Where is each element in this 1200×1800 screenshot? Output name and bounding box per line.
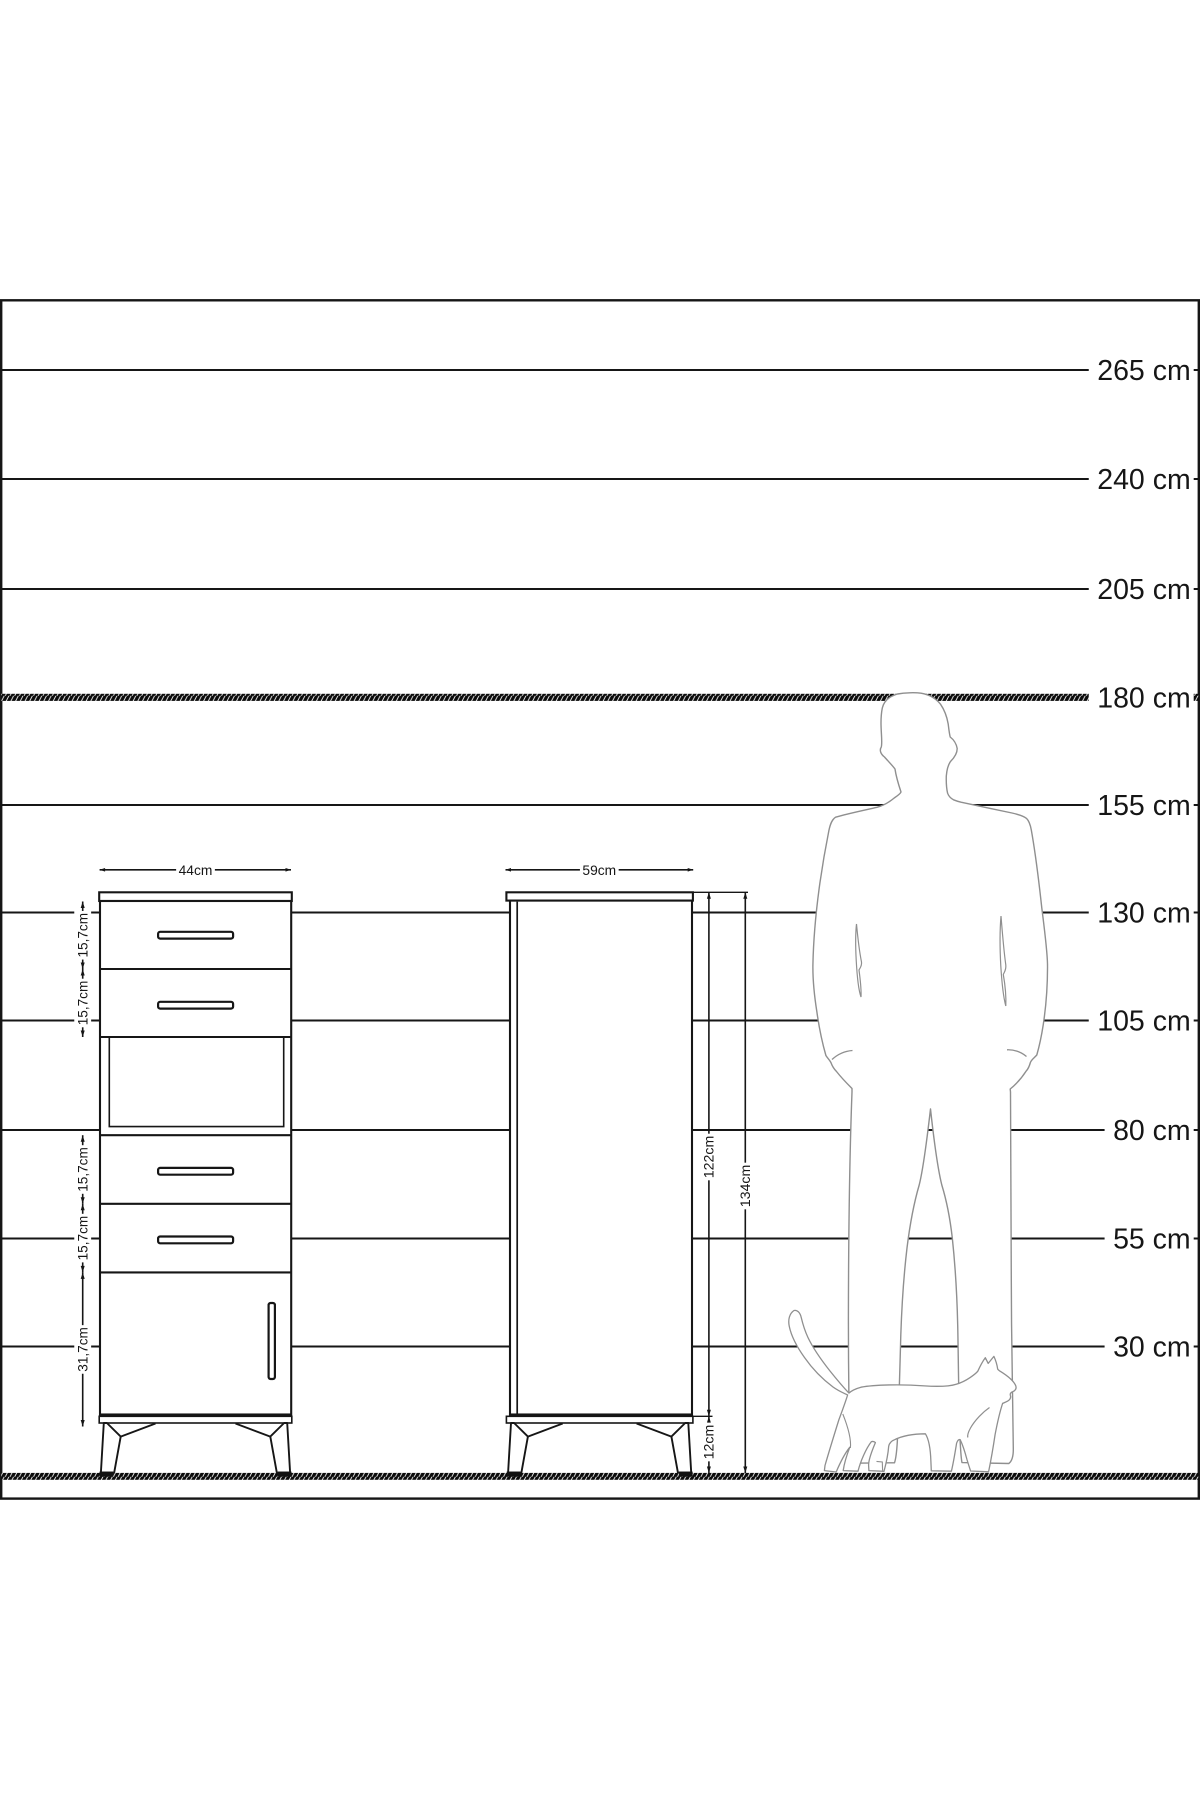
svg-text:134cm: 134cm bbox=[738, 1165, 754, 1208]
svg-text:130 cm: 130 cm bbox=[1097, 898, 1190, 930]
svg-text:59cm: 59cm bbox=[582, 863, 616, 878]
svg-text:15,7cm: 15,7cm bbox=[75, 981, 90, 1026]
svg-text:240 cm: 240 cm bbox=[1097, 464, 1190, 496]
svg-text:44cm: 44cm bbox=[179, 863, 213, 878]
svg-text:205 cm: 205 cm bbox=[1097, 574, 1190, 606]
svg-text:180 cm: 180 cm bbox=[1097, 683, 1190, 715]
svg-text:80 cm: 80 cm bbox=[1113, 1115, 1191, 1147]
svg-text:155 cm: 155 cm bbox=[1097, 790, 1190, 822]
svg-text:15,7cm: 15,7cm bbox=[75, 913, 90, 958]
svg-text:15,7cm: 15,7cm bbox=[75, 1147, 90, 1192]
svg-text:30 cm: 30 cm bbox=[1113, 1332, 1191, 1364]
svg-text:31,7cm: 31,7cm bbox=[75, 1327, 90, 1372]
svg-text:122cm: 122cm bbox=[702, 1136, 718, 1179]
svg-text:105 cm: 105 cm bbox=[1097, 1006, 1190, 1038]
svg-text:12cm: 12cm bbox=[702, 1425, 718, 1460]
svg-text:15,7cm: 15,7cm bbox=[75, 1216, 90, 1261]
svg-text:55 cm: 55 cm bbox=[1113, 1224, 1191, 1256]
svg-text:265 cm: 265 cm bbox=[1097, 355, 1190, 387]
